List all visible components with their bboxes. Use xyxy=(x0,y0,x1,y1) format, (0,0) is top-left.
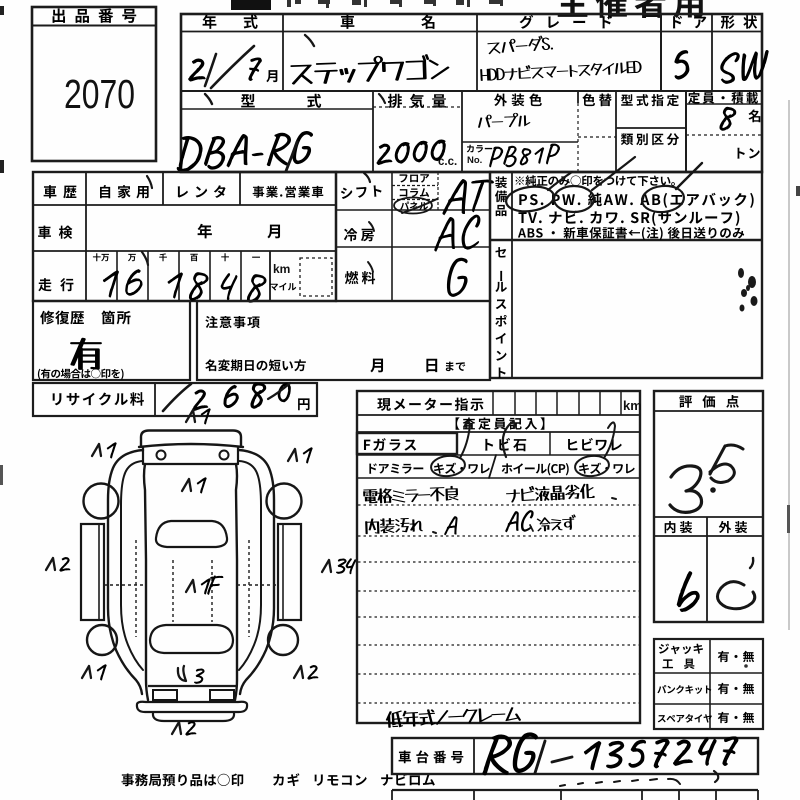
svg-text:No.: No. xyxy=(467,155,482,166)
svg-text:km: km xyxy=(623,398,642,413)
svg-text:km: km xyxy=(273,262,290,276)
svg-text:2070: 2070 xyxy=(64,71,135,117)
